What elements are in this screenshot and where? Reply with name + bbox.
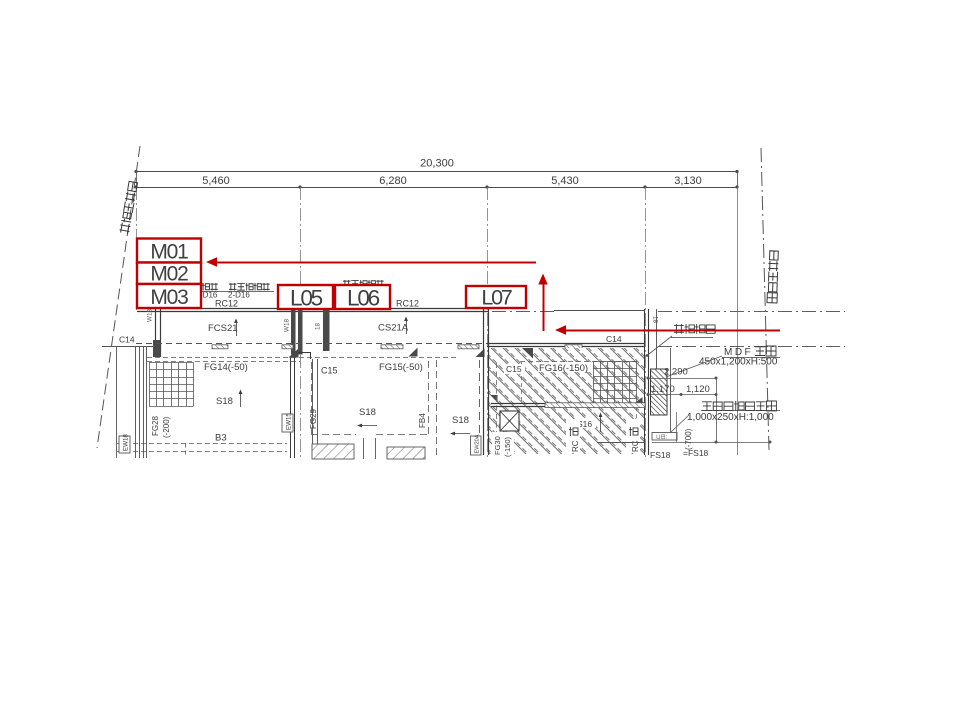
svg-text:S18: S18	[216, 396, 233, 407]
svg-text:(-700): (-700)	[684, 428, 693, 450]
svg-text:M01: M01	[150, 240, 188, 263]
svg-text:RC12: RC12	[215, 299, 238, 309]
svg-text:M02: M02	[150, 263, 188, 286]
svg-text:L07: L07	[481, 286, 512, 310]
svg-text:S18: S18	[359, 407, 376, 418]
svg-text:-D16: -D16	[200, 291, 218, 300]
svg-text:2,290: 2,290	[664, 367, 688, 378]
svg-text:450x1,200xH:500: 450x1,200xH:500	[699, 357, 778, 368]
svg-text:RC12: RC12	[396, 299, 419, 309]
svg-text:1,170: 1,170	[651, 384, 675, 395]
svg-text:20,300: 20,300	[420, 158, 454, 170]
svg-text:(-200): (-200)	[162, 416, 171, 438]
svg-text:FG15(-50): FG15(-50)	[379, 362, 423, 373]
svg-text:RC: RC	[571, 440, 580, 452]
svg-text:FG30: FG30	[493, 436, 502, 455]
svg-text:W18: W18	[147, 309, 154, 322]
svg-text:FS18: FS18	[650, 450, 671, 460]
svg-text:FG16(-150): FG16(-150)	[539, 363, 588, 374]
svg-text:1,000x250xH:1,000: 1,000x250xH:1,000	[687, 412, 774, 423]
svg-text:EW18: EW18	[123, 434, 130, 451]
svg-text:FG14(-50): FG14(-50)	[204, 362, 248, 373]
svg-text:FCS21: FCS21	[208, 323, 238, 334]
svg-text:FG28: FG28	[151, 415, 160, 436]
svg-text:5,430: 5,430	[551, 175, 579, 187]
svg-text:(-150): (-150)	[503, 436, 512, 457]
svg-text:CS21A: CS21A	[378, 323, 409, 334]
svg-text:L06: L06	[347, 286, 380, 311]
svg-text:3,130: 3,130	[674, 175, 702, 187]
svg-text:6,280: 6,280	[379, 175, 407, 187]
svg-text:1,120: 1,120	[686, 384, 710, 395]
svg-text:B3: B3	[215, 433, 227, 444]
svg-text:FB4: FB4	[418, 413, 427, 428]
svg-text:EW20A: EW20A	[475, 434, 481, 453]
svg-text:C15: C15	[506, 364, 522, 374]
svg-text:18: 18	[652, 316, 659, 324]
svg-text:5,460: 5,460	[202, 175, 230, 187]
svg-text:EW15: EW15	[286, 413, 293, 430]
svg-text:⊔⊟:: ⊔⊟:	[656, 435, 668, 441]
svg-text:18: 18	[315, 322, 322, 330]
svg-text:2-D16: 2-D16	[228, 291, 250, 300]
svg-text:FG29: FG29	[309, 408, 318, 429]
svg-text:S18: S18	[452, 415, 469, 426]
svg-text:M03: M03	[150, 286, 188, 309]
svg-text:C15: C15	[321, 366, 338, 376]
svg-text:W18: W18	[284, 319, 291, 332]
svg-text:C14: C14	[606, 334, 622, 344]
svg-text:L05: L05	[290, 286, 323, 311]
svg-text:C14: C14	[119, 335, 135, 345]
svg-text:RC: RC	[631, 440, 640, 452]
